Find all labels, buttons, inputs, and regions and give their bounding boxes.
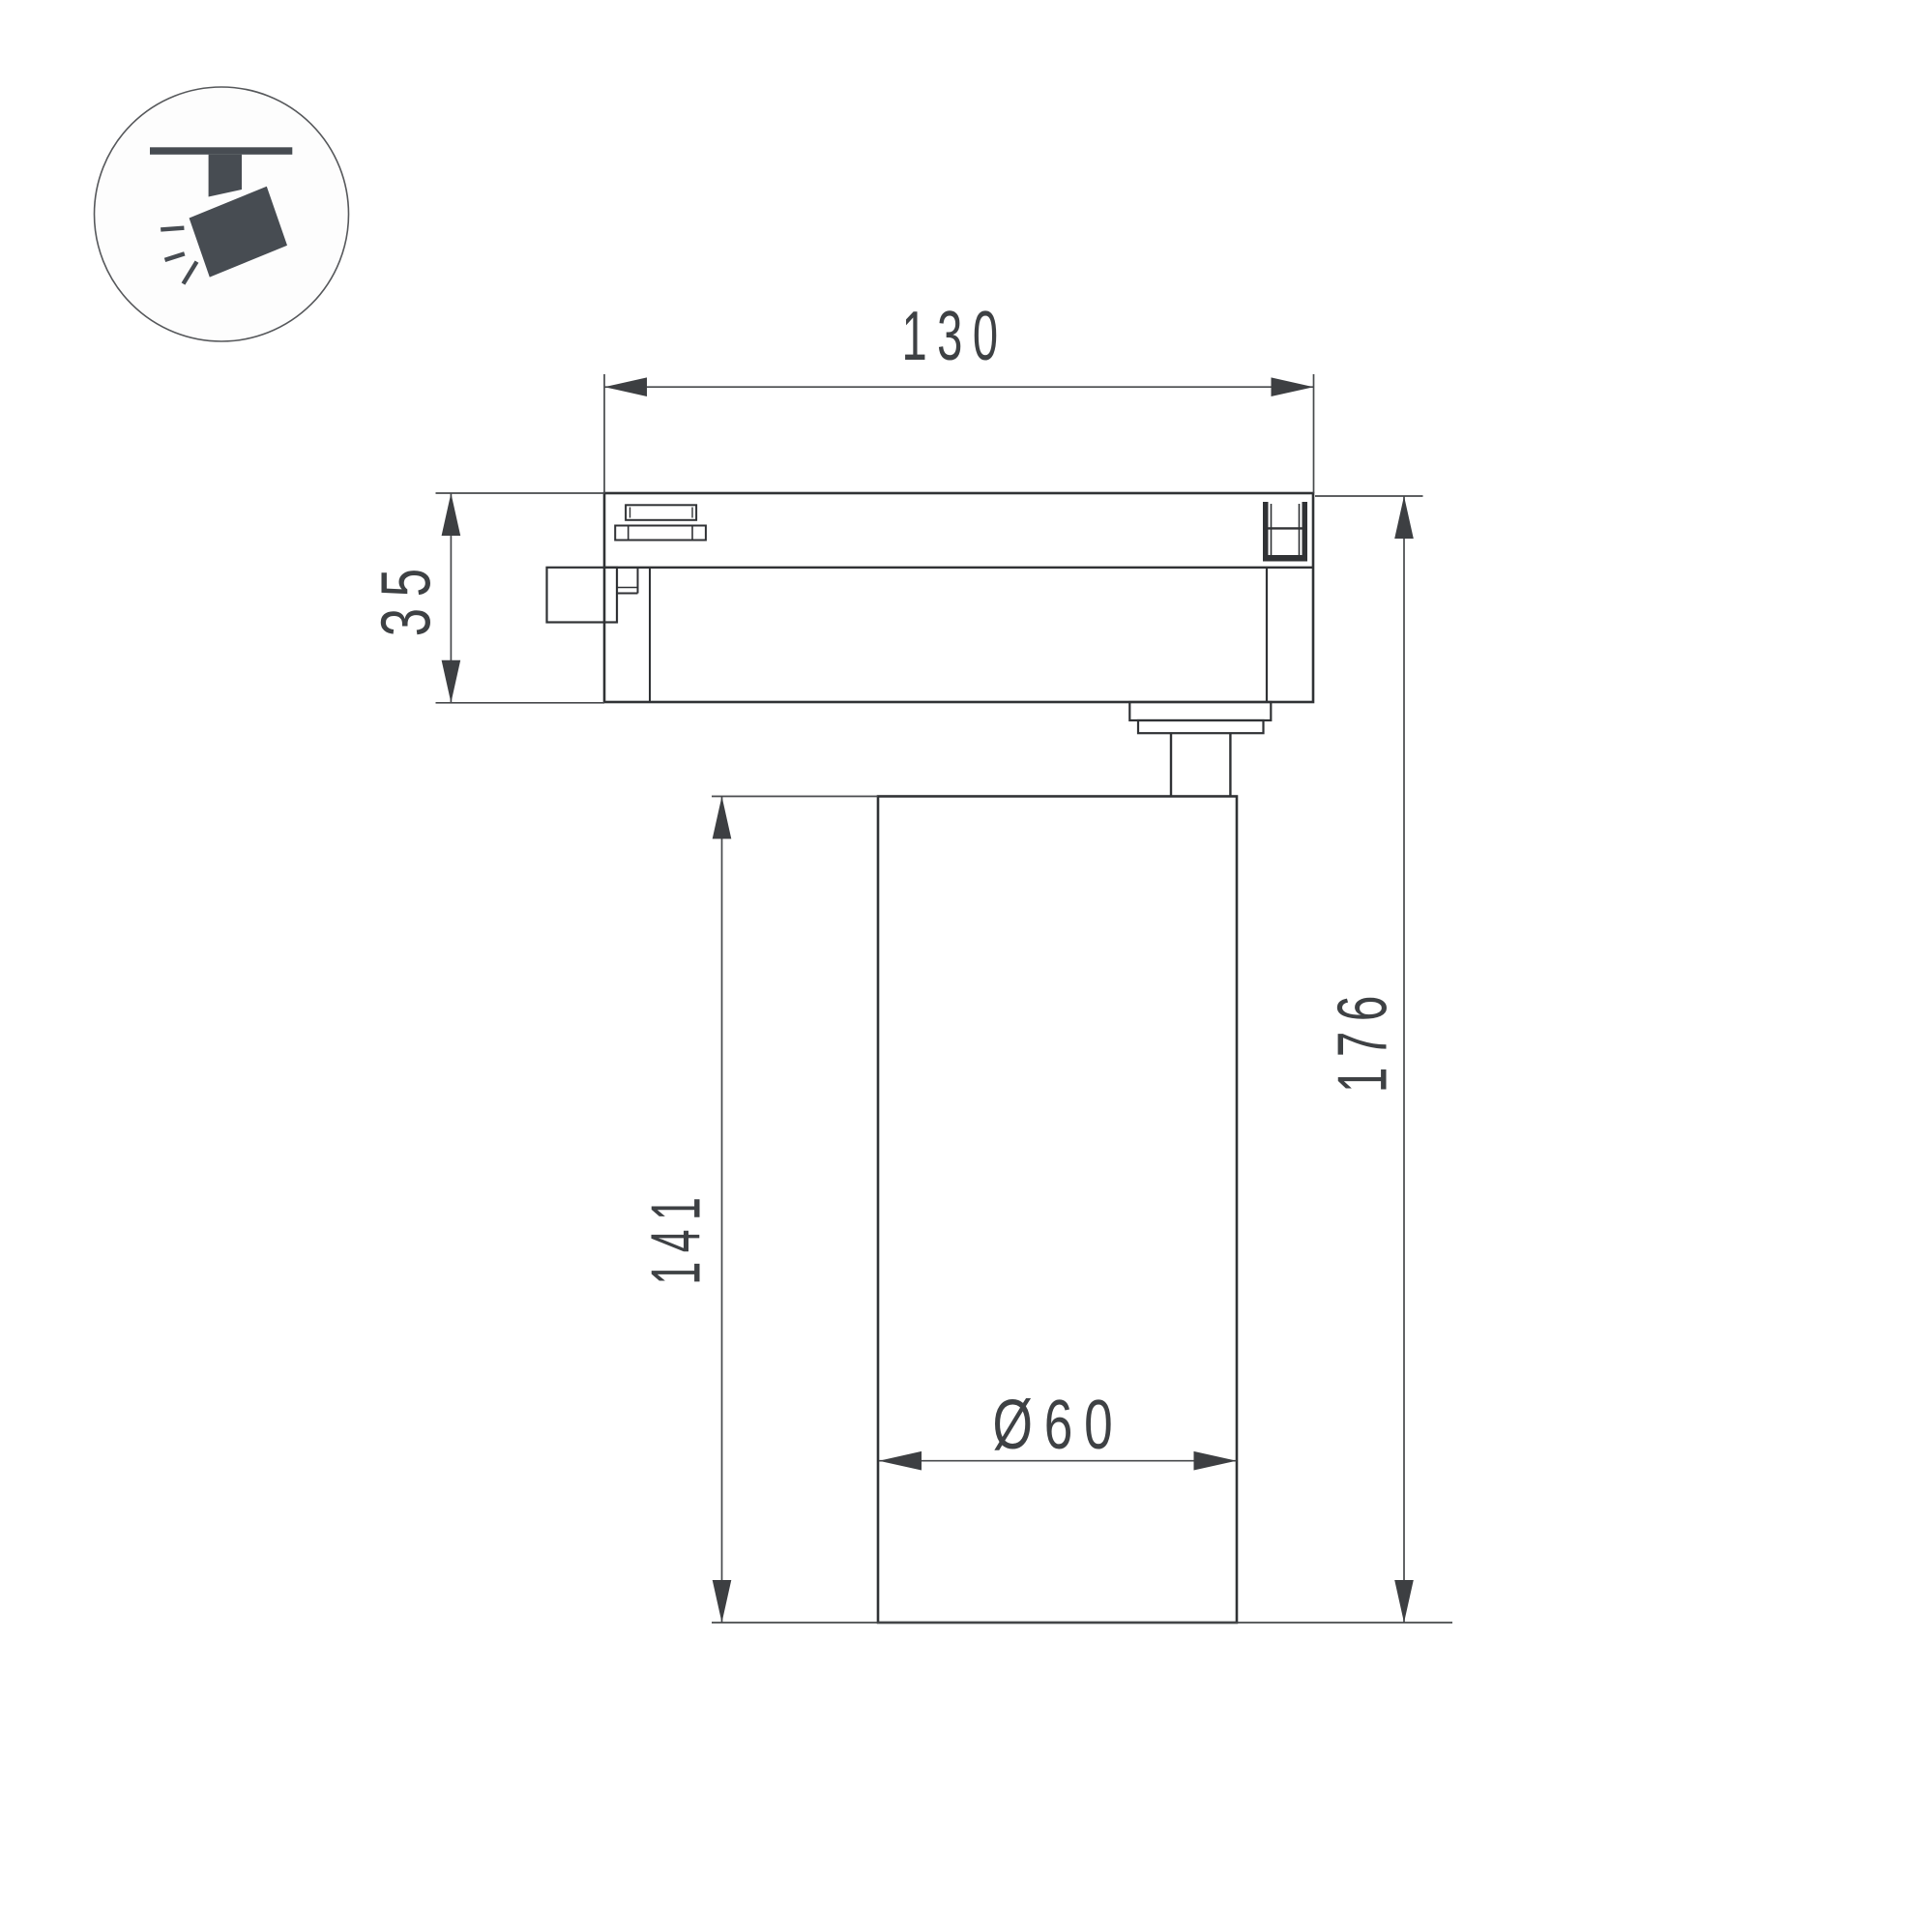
svg-text:35: 35 [368,557,446,636]
svg-text:176: 176 [1325,985,1402,1093]
svg-text:141: 141 [638,1188,716,1285]
svg-text:Ø60: Ø60 [993,1387,1125,1464]
svg-text:130: 130 [902,298,1009,375]
